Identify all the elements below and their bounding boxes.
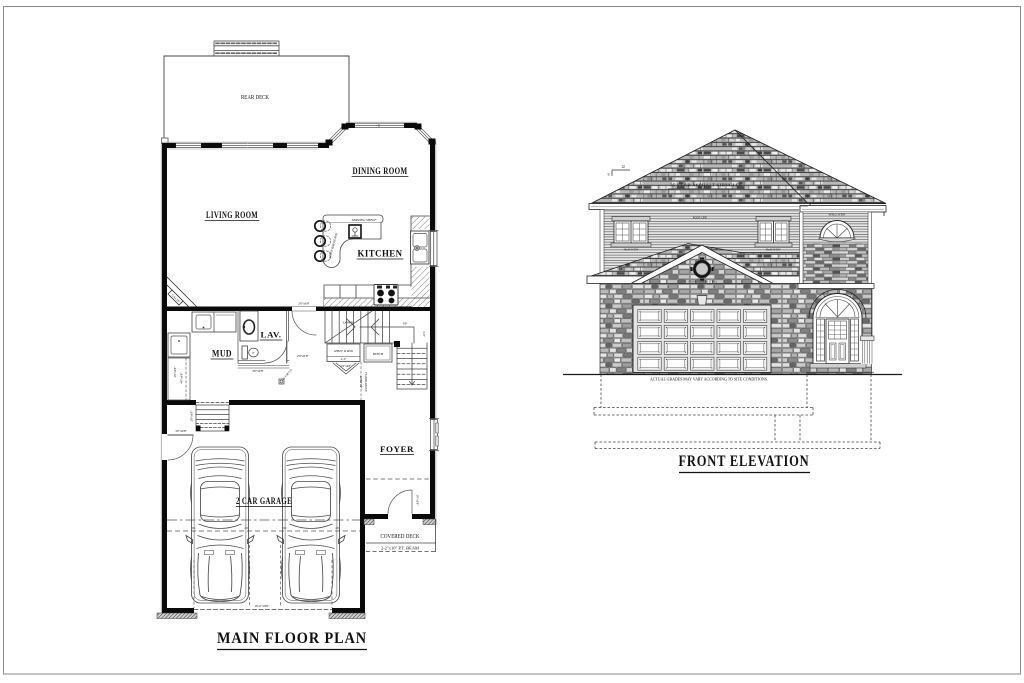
svg-text:ACTUAL GRADES MAY VARY ACCORDI: ACTUAL GRADES MAY VARY ACCORDING TO SITE… bbox=[650, 377, 768, 382]
svg-text:4'-0": 4'-0" bbox=[341, 357, 348, 361]
svg-text:35 YEAR ASPHALT SHINGLES: 35 YEAR ASPHALT SHINGLES bbox=[670, 183, 743, 188]
svg-text:FOYER: FOYER bbox=[380, 444, 414, 454]
svg-text:2'8"x6'8": 2'8"x6'8" bbox=[190, 410, 194, 422]
svg-text:3'-0": 3'-0" bbox=[422, 331, 426, 338]
svg-text:6": 6" bbox=[252, 352, 254, 355]
svg-text:DOWN: DOWN bbox=[342, 321, 354, 325]
svg-text:4'0"x6'8": 4'0"x6'8" bbox=[180, 372, 184, 384]
svg-text:16'-0"x8'0": 16'-0"x8'0" bbox=[254, 604, 270, 608]
svg-text:3'0"x6'8": 3'0"x6'8" bbox=[175, 429, 187, 433]
svg-text:40x40 WDW: 40x40 WDW bbox=[624, 249, 639, 252]
svg-text:UP: UP bbox=[403, 322, 408, 326]
svg-text:2'6"x6'8": 2'6"x6'8" bbox=[298, 302, 310, 306]
svg-text:FRONT ELEVATION: FRONT ELEVATION bbox=[679, 453, 810, 470]
svg-text:3'0"x6'8": 3'0"x6'8" bbox=[416, 494, 420, 506]
svg-text:12: 12 bbox=[621, 165, 625, 169]
svg-text:SERVING SHELF: SERVING SHELF bbox=[352, 218, 378, 222]
svg-text:LIMIT OF: LIMIT OF bbox=[359, 375, 363, 389]
svg-text:KITCHEN: KITCHEN bbox=[358, 250, 403, 260]
svg-text:SHELF & ROD: SHELF & ROD bbox=[334, 349, 354, 353]
svg-text:2'6"x6'8": 2'6"x6'8" bbox=[341, 364, 352, 368]
svg-text:2'8"x6'8": 2'8"x6'8" bbox=[297, 354, 309, 358]
svg-text:2-2"x10" P.T. BEAM: 2-2"x10" P.T. BEAM bbox=[381, 546, 419, 551]
svg-text:2'0"x6'8": 2'0"x6'8" bbox=[173, 366, 177, 378]
svg-text:LIVING ROOM: LIVING ROOM bbox=[206, 211, 258, 221]
svg-text:2 CAR GARAGE: 2 CAR GARAGE bbox=[236, 496, 292, 506]
svg-text:LAV.: LAV. bbox=[261, 330, 282, 340]
svg-text:MUD: MUD bbox=[212, 349, 232, 359]
svg-text:ROOF LINE: ROOF LINE bbox=[693, 217, 708, 220]
svg-text:REAR DECK: REAR DECK bbox=[241, 94, 269, 101]
svg-text:COVERED DECK: COVERED DECK bbox=[381, 534, 421, 540]
svg-text:40 R.O. WDW: 40 R.O. WDW bbox=[829, 214, 846, 217]
svg-text:STONE VENEER (TYP.): STONE VENEER (TYP.) bbox=[688, 281, 717, 284]
svg-text:MAIN FLOOR PLAN: MAIN FLOOR PLAN bbox=[217, 630, 367, 647]
svg-text:FLOOR ABOVE: FLOOR ABOVE bbox=[364, 371, 368, 392]
svg-text:3'0"x6'8": 3'0"x6'8" bbox=[252, 369, 264, 373]
svg-text:BENCH: BENCH bbox=[373, 352, 384, 356]
svg-text:9: 9 bbox=[608, 173, 610, 177]
svg-text:40x40 WDW: 40x40 WDW bbox=[766, 249, 781, 252]
svg-text:DINING ROOM: DINING ROOM bbox=[353, 167, 408, 177]
